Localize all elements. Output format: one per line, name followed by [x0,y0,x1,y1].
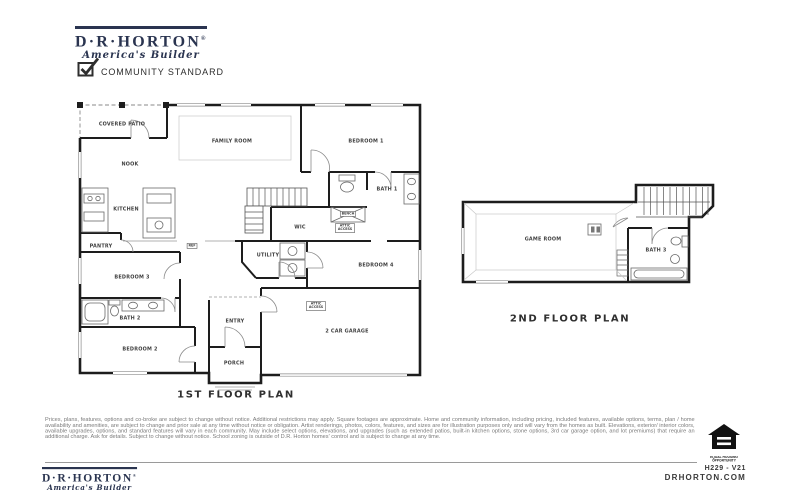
room-label-porch: PORCH [224,360,244,366]
floor-plan-1-drawing [75,100,425,405]
room-label-pantry: PANTRY [90,243,113,249]
room-label-attic-access-2: ATTIC ACCESS [306,301,326,310]
room-label-bath-2: BATH 2 [120,315,141,321]
plan1-title: 1ST FLOOR PLAN [177,390,295,401]
room-label-bench: BENCH [340,211,356,217]
logo-name: D·R·HORTON® [75,31,207,50]
room-label-entry: ENTRY [226,318,245,324]
equal-housing-icon [707,423,741,450]
plan-code: H229 - V21 [705,465,746,472]
footer-registered-mark: ® [133,474,136,478]
flyer-page: D·R·HORTON® America's Builder COMMUNITY … [0,0,800,500]
equal-housing-label: EQUAL HOUSING OPPORTUNITY [704,456,744,463]
floor-plan-2: GAME ROOM BATH 3 2ND FLOOR PLAN [460,180,720,330]
plan2-title: 2ND FLOOR PLAN [510,314,630,325]
room-label-attic-access-1: ATTIC ACCESS [335,223,355,232]
room-label-game-room: GAME ROOM [525,236,562,242]
room-label-utility: UTILITY [257,252,279,258]
footer-logo-name: D·R·HORTON® [42,470,137,484]
room-label-covered-patio: COVERED PATIO [99,121,145,127]
website-text: DRHORTON.COM [665,473,746,482]
footer-divider [45,462,697,463]
logo-rule [75,26,207,29]
room-label-kitchen: KITCHEN [113,206,139,212]
room-label-bath-1: BATH 1 [377,186,398,192]
room-label-bath-3: BATH 3 [646,247,667,253]
room-label-bedroom-1: BEDROOM 1 [348,138,383,144]
footer-logo-rule [42,467,137,469]
disclaimer-text: Prices, plans, features, options and co-… [45,417,695,439]
room-label-bedroom-3: BEDROOM 3 [114,274,149,280]
floor-plan-2-drawing [460,180,720,330]
room-label-bedroom-4: BEDROOM 4 [358,262,393,268]
community-standard-row: COMMUNITY STANDARD [77,56,297,82]
room-label-family-room: FAMILY ROOM [212,138,252,144]
room-label-wic: WIC [294,224,305,230]
checkbox-label: COMMUNITY STANDARD [101,67,224,77]
registered-mark: ® [201,36,205,42]
room-label-garage: 2 CAR GARAGE [325,328,368,334]
checkbox-check-icon [77,56,101,78]
equal-housing-block: EQUAL HOUSING OPPORTUNITY [704,423,744,468]
room-label-bedroom-2: BEDROOM 2 [122,346,157,352]
room-label-ref: REF [187,243,197,249]
room-label-nook: NOOK [121,161,138,167]
floor-plan-1: COVERED PATIO FAMILY ROOM BEDROOM 1 NOOK… [75,100,425,405]
footer-logo-tagline: America's Builder [42,484,137,492]
footer-logo: D·R·HORTON® America's Builder [42,467,137,492]
